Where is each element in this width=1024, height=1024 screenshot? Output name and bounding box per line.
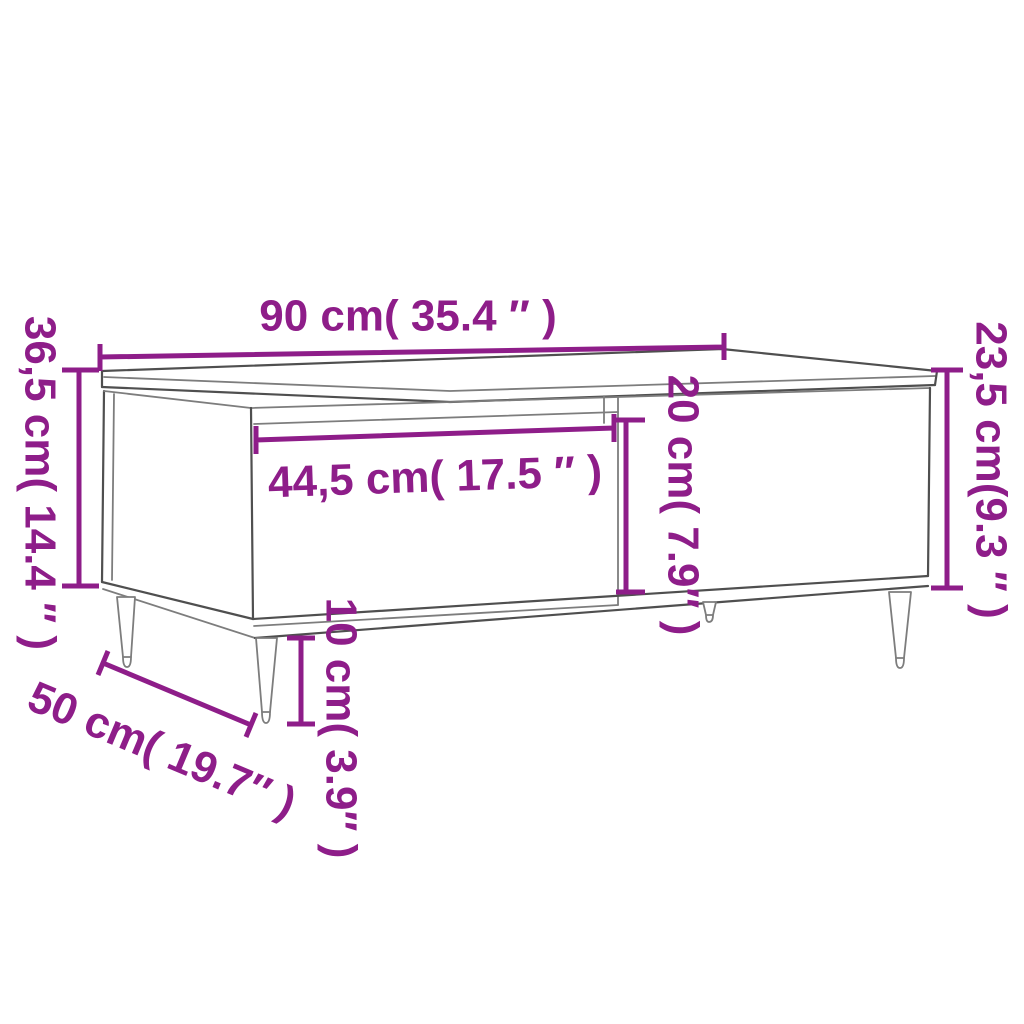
left-side-back-edge: [102, 391, 104, 582]
dimension-line-leg-height: [287, 638, 315, 724]
dimension-diagram-page: 90 cm( 35.4 ″ ) 36,5 cm( 14.4 ″ ) 23,5 c…: [0, 0, 1024, 1024]
dimension-label-width: 90 cm( 35.4 ″ ): [259, 292, 556, 341]
dimension-leg-height: 10 cm( 3.9″ ): [287, 598, 366, 859]
dimension-label-drawer-height: 20 cm( 7.9″ ): [659, 375, 708, 636]
dimension-label-drawer-width: 44,5 cm( 17.5 ″ ): [267, 447, 603, 508]
door-right-edge: [928, 388, 930, 576]
coffee-table-drawing: [102, 349, 937, 723]
dimension-line-height-left: [62, 370, 99, 586]
dimension-height-right: 23,5 cm(9.3 ″ ): [931, 321, 1016, 618]
dimension-label-height-right: 23,5 cm(9.3 ″ ): [967, 321, 1016, 618]
cabinet-body: [102, 388, 930, 638]
dimension-drawer-width: 44,5 cm( 17.5 ″ ): [256, 414, 614, 507]
left-side-inner-line: [112, 394, 114, 580]
front-left-corner-edge: [251, 408, 253, 619]
dimension-label-height-left: 36,5 cm( 14.4 ″ ): [16, 316, 65, 650]
dimension-height-left: 36,5 cm( 14.4 ″ ): [16, 316, 100, 650]
dimension-label-leg-height: 10 cm( 3.9″ ): [317, 598, 366, 859]
drawer-front: [254, 412, 618, 626]
leg-front-right: [889, 592, 911, 668]
dimension-line-height-right: [931, 370, 963, 588]
diagram-canvas: 90 cm( 35.4 ″ ) 36,5 cm( 14.4 ″ ) 23,5 c…: [0, 0, 1024, 1024]
drawer-top-edge: [254, 412, 618, 424]
dimension-line-drawer-height: [616, 420, 645, 592]
leg-front-left: [256, 638, 277, 723]
dimension-drawer-height: 20 cm( 7.9″ ): [616, 375, 708, 636]
